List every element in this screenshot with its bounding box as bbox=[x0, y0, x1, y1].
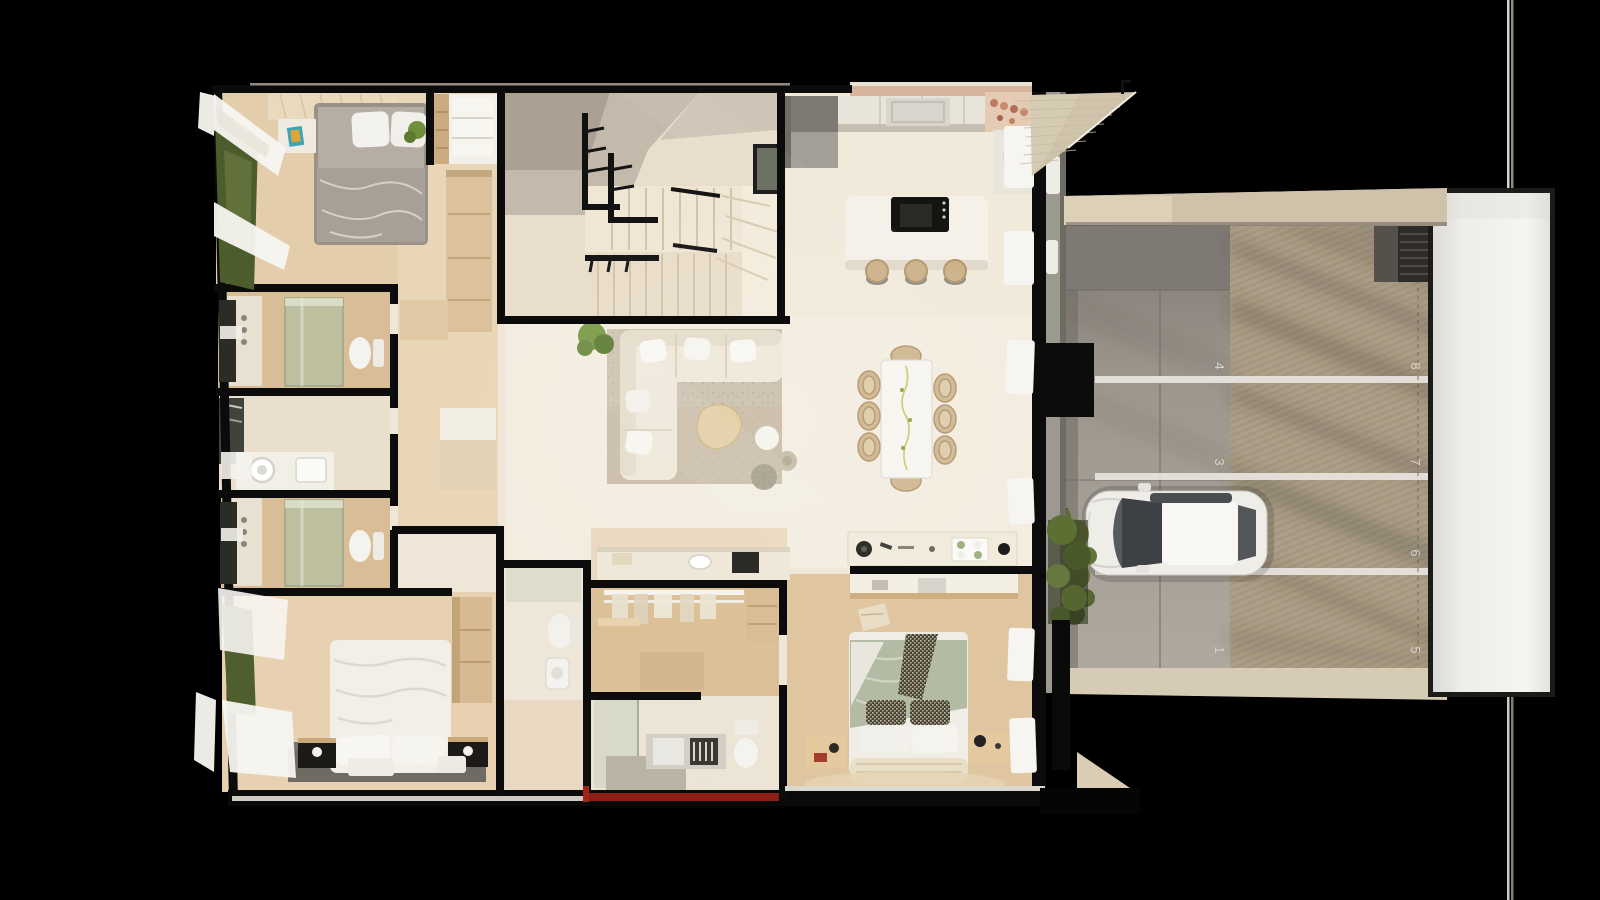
svg-text:8: 8 bbox=[1408, 362, 1423, 369]
svg-text:6: 6 bbox=[1408, 549, 1423, 556]
svg-text:1: 1 bbox=[1212, 646, 1227, 653]
svg-text:7: 7 bbox=[1408, 458, 1423, 465]
svg-text:3: 3 bbox=[1212, 458, 1227, 465]
svg-text:5: 5 bbox=[1408, 646, 1423, 653]
svg-text:4: 4 bbox=[1212, 362, 1227, 369]
